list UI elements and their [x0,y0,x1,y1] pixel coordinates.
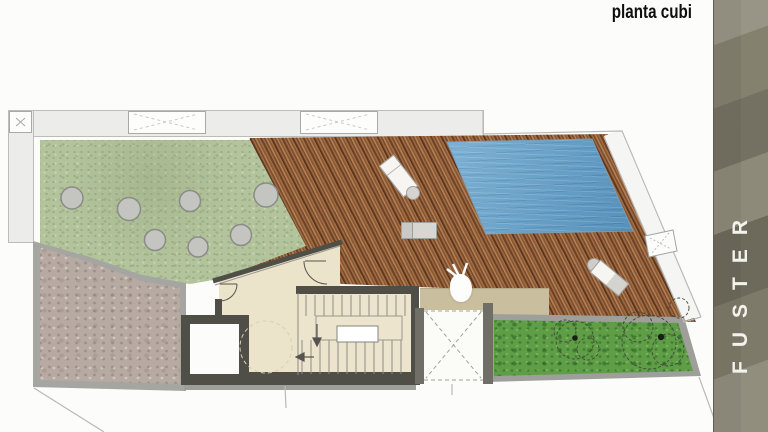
wall-sill [184,385,416,390]
skylight-shaft-wall [415,308,424,384]
side-table [406,186,420,200]
skylight-shaft-wall [483,303,493,384]
open-skylight-shaft [424,310,483,381]
brand-sidebar: FUSTER [713,0,768,432]
lawn-planter [492,318,695,378]
slide: planta cubi [0,0,768,432]
stairwell-floor [298,294,411,375]
skylight-1 [128,111,206,134]
chair-crease [387,165,401,176]
potted-plant [450,274,472,302]
wall [215,299,222,317]
chair-seat [412,223,436,238]
elevator-cab [190,324,239,374]
skylight-2 [300,111,378,134]
brand-name: FUSTER [729,206,753,374]
page-title: planta cubi [577,2,692,26]
skylight-small [9,111,32,133]
lounge-chair [401,222,437,239]
roof-skylight-band [8,110,484,137]
wall [296,286,419,294]
